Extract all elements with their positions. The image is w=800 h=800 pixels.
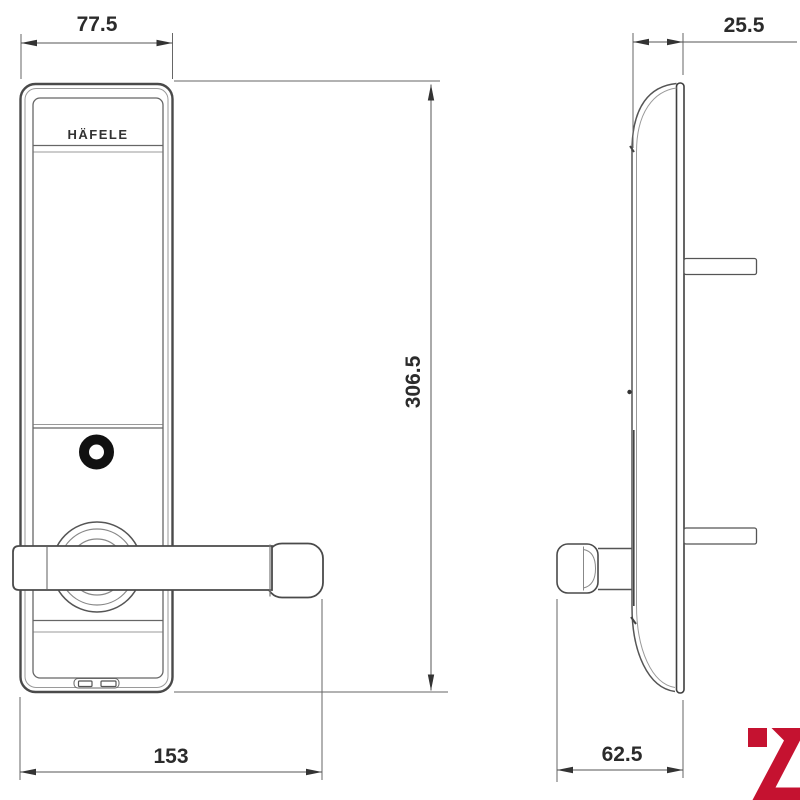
lever-handle-front — [13, 544, 323, 598]
dim-side-bottom-depth: 62.5 — [557, 599, 683, 782]
watermark-letter-bottom-bar — [761, 788, 800, 800]
side-back-plate — [677, 83, 685, 693]
handle-bar — [13, 546, 272, 590]
profile-top-curve-inner — [637, 88, 677, 152]
arrowhead-right — [306, 769, 322, 775]
dimension-text: 153 — [153, 745, 188, 768]
side-front-profile — [627, 84, 676, 692]
dim-front-height: 306.5 — [174, 81, 448, 692]
mounting-post-bottom — [684, 528, 757, 544]
door-lock-dimension-drawing: HÄFELE — [0, 0, 800, 800]
dimension-text: 62.5 — [602, 743, 643, 766]
profile-bottom-curve-outer — [632, 607, 675, 692]
handle-grip-section — [557, 544, 598, 593]
profile-bottom-curve-inner — [637, 605, 676, 688]
arrowhead-left — [633, 39, 649, 45]
watermark-logo — [748, 728, 800, 800]
arrowhead-bottom — [428, 675, 434, 691]
side-view — [557, 83, 757, 693]
front-view: HÄFELE — [13, 84, 323, 692]
brand-label: HÄFELE — [68, 127, 129, 142]
battery-cover-tabs — [74, 679, 119, 689]
watermark-letter-top-bar — [772, 728, 800, 741]
handle-end-cap — [267, 544, 323, 598]
tab-left — [79, 681, 93, 687]
mounting-post-top — [684, 259, 757, 275]
arrowhead-top — [428, 85, 434, 101]
tab-right — [101, 681, 116, 687]
arrowhead-left — [21, 40, 37, 46]
dim-side-top-depth: 25.5 — [633, 14, 797, 148]
dimension-text: 25.5 — [724, 14, 765, 37]
front-body-outline — [21, 84, 173, 692]
side-handle — [557, 544, 632, 593]
dim-front-width: 77.5 — [21, 13, 173, 79]
technical-drawing-page: HÄFELE — [0, 0, 800, 800]
arrowhead-right — [667, 39, 683, 45]
arrowhead-right — [157, 40, 173, 46]
profile-top-curve-outer — [632, 84, 677, 152]
dimension-text: 77.5 — [77, 13, 118, 36]
watermark-square — [748, 728, 767, 747]
dimension-text: 306.5 — [402, 355, 425, 408]
keyhole-edge-dot — [627, 390, 631, 394]
arrowhead-left — [20, 769, 36, 775]
arrowhead-left — [557, 767, 573, 773]
arrowhead-right — [667, 767, 683, 773]
